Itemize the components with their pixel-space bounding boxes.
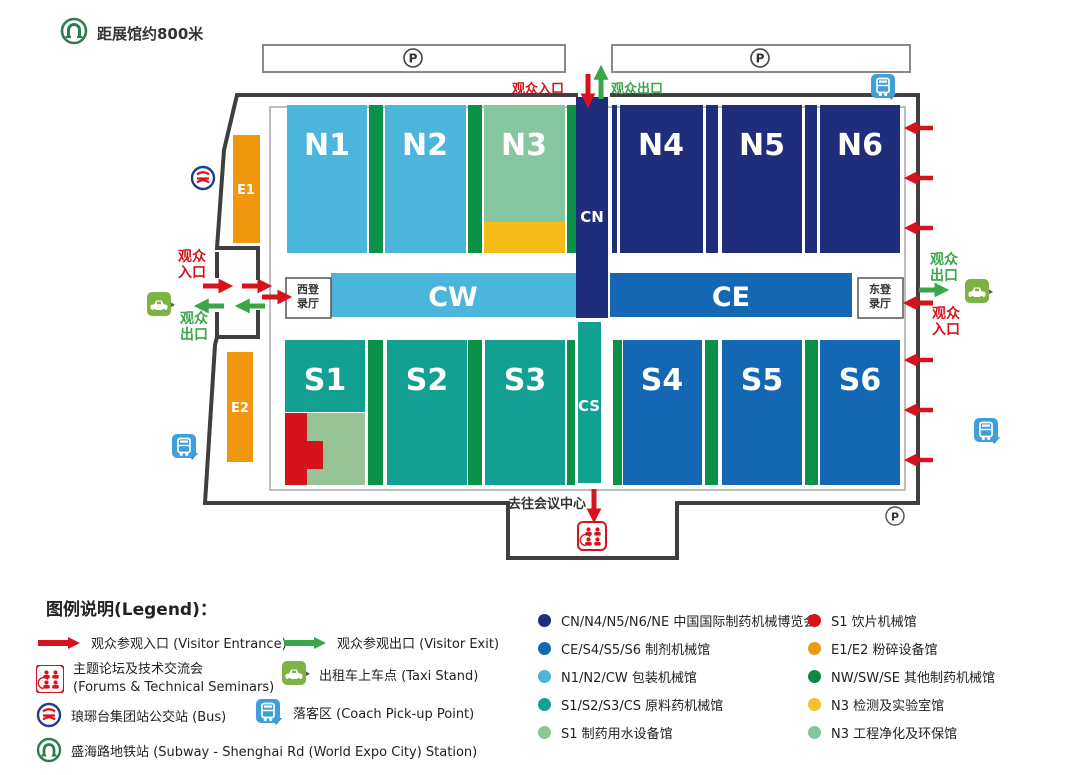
hall-s6-label: S6: [839, 363, 881, 398]
hall-e2-label: E2: [231, 401, 249, 416]
strip-s4-s5: [705, 340, 718, 485]
subway-logo-icon: [36, 737, 62, 763]
parking-lot-east: P: [612, 45, 910, 72]
east-exit-label: 观众出口: [927, 252, 961, 284]
hall-cw-label: CW: [428, 282, 478, 313]
legend-hall-item: CN/N4/N5/N6/NE 中国国际制药机械博览会: [538, 606, 816, 634]
hall-s4: [623, 340, 702, 485]
legend-coach-row: 落客区 (Coach Pick-up Point): [256, 699, 499, 726]
parking-lot-west: P: [263, 45, 565, 72]
color-dot: [808, 642, 821, 655]
parking-label: P: [409, 52, 418, 66]
taxi-stand-icon: [147, 292, 175, 316]
color-dot: [808, 670, 821, 683]
taxi-stand-icon: [282, 661, 310, 687]
hall-s2-label: S2: [406, 363, 448, 398]
entrance-arrow-icon: [36, 636, 82, 650]
west-registration-label: 西登录厅: [295, 283, 321, 311]
legend-hall-item: N3 检测及实验室馆: [808, 690, 995, 718]
legend-coach-label: 落客区 (Coach Pick-up Point): [293, 703, 474, 722]
hall-legend-label: N3 工程净化及环保馆: [831, 723, 957, 742]
strip-n4-n5: [706, 105, 718, 253]
legend-hall-colors-2: S1 饮片机械馆 E1/E2 粉碎设备馆 NW/SW/SE 其他制药机械馆 N3…: [808, 606, 995, 746]
strip-n3-cn: [567, 105, 577, 253]
hall-legend-label: N3 检测及实验室馆: [831, 695, 944, 714]
hall-legend-label: CE/S4/S5/S6 制剂机械馆: [561, 639, 710, 658]
hall-s5-label: S5: [741, 363, 783, 398]
legend-hall-item: S1/S2/S3/CS 原料药机械馆: [538, 690, 816, 718]
strip-s2-s3: [468, 340, 482, 485]
hall-cs-label: CS: [578, 397, 600, 415]
legend-exit-row: 观众参观出口 (Visitor Exit): [282, 633, 499, 652]
legend-taxi-label: 出租车上车点 (Taxi Stand): [319, 665, 478, 684]
top-exit-label: 观众出口: [611, 78, 663, 97]
forums-icon: [36, 665, 64, 693]
parking-label: P: [891, 511, 899, 524]
hall-legend-label: N1/N2/CW 包装机械馆: [561, 667, 697, 686]
parking-label: P: [756, 52, 765, 66]
legend-column-b: 观众参观出口 (Visitor Exit) 出租车上车点 (Taxi Stand…: [282, 633, 499, 735]
legend-hall-item: CE/S4/S5/S6 制剂机械馆: [538, 634, 816, 662]
legend-forums-line1: 主题论坛及技术交流会: [73, 662, 203, 677]
strip-cn-n4: [612, 105, 617, 253]
strip-cs-s4: [613, 340, 622, 485]
hall-s2: [387, 340, 467, 485]
legend-hall-item: S1 制药用水设备馆: [538, 718, 816, 746]
legend-subway-row: 盛海路地铁站 (Subway - Shenghai Rd (World Expo…: [36, 737, 477, 763]
legend-taxi-row: 出租车上车点 (Taxi Stand): [282, 661, 499, 687]
hall-legend-label: S1 饮片机械馆: [831, 611, 917, 630]
west-exit-label: 观众出口: [177, 311, 211, 343]
to-conference-label: 去往会议中心: [508, 493, 586, 512]
hall-s5: [722, 340, 802, 485]
parking-mark-southeast: P: [886, 507, 904, 525]
hall-s1-label: S1: [304, 363, 346, 398]
exit-arrow-icon: [282, 636, 328, 650]
legend-bus-station-label: 琅琊台集团站公交站 (Bus): [71, 706, 226, 725]
legend-entrance-label: 观众参观入口 (Visitor Entrance): [91, 633, 287, 652]
strip-n5-n6: [805, 105, 817, 253]
strip-n1-n2: [369, 105, 383, 253]
hall-s3: [485, 340, 565, 485]
hall-n3-label: N3: [501, 128, 547, 163]
legend-hall-item: E1/E2 粉碎设备馆: [808, 634, 995, 662]
strip-n2-n3: [468, 105, 482, 253]
coach-pickup-icon: [172, 434, 198, 460]
strip-s5-s6: [805, 340, 818, 485]
color-dot: [808, 614, 821, 627]
hall-legend-label: S1 制药用水设备馆: [561, 723, 673, 742]
bus-station-icon: [192, 167, 214, 189]
color-dot: [538, 670, 551, 683]
hall-n4-label: N4: [638, 128, 684, 163]
strip-s3-cs: [567, 340, 575, 485]
forums-icon: [578, 522, 606, 550]
hall-n3-lab-zone: [484, 222, 565, 253]
hall-cn-label: CN: [580, 208, 604, 226]
coach-pickup-icon: [256, 699, 284, 726]
legend-title: 图例说明(Legend)：: [46, 595, 217, 620]
bus-station-icon: [36, 702, 62, 728]
coach-pickup-icon: [974, 418, 1000, 444]
hall-ce-label: CE: [712, 282, 750, 313]
legend-hall-colors-1: CN/N4/N5/N6/NE 中国国际制药机械博览会 CE/S4/S5/S6 制…: [538, 606, 816, 746]
color-dot: [808, 698, 821, 711]
hall-s4-label: S4: [641, 363, 683, 398]
hall-legend-label: S1/S2/S3/CS 原料药机械馆: [561, 695, 723, 714]
legend-hall-item: NW/SW/SE 其他制药机械馆: [808, 662, 995, 690]
legend-hall-item: N1/N2/CW 包装机械馆: [538, 662, 816, 690]
color-dot: [538, 642, 551, 655]
hall-legend-label: CN/N4/N5/N6/NE 中国国际制药机械博览会: [561, 611, 816, 630]
color-dot: [538, 726, 551, 739]
hall-legend-label: NW/SW/SE 其他制药机械馆: [831, 667, 995, 686]
taxi-stand-icon: [965, 279, 993, 303]
hall-n6-label: N6: [837, 128, 883, 163]
legend-exit-label: 观众参观出口 (Visitor Exit): [337, 633, 499, 652]
color-dot: [808, 726, 821, 739]
hall-s3-label: S3: [504, 363, 546, 398]
hall-e1-label: E1: [237, 183, 255, 198]
hall-legend-label: E1/E2 粉碎设备馆: [831, 639, 937, 658]
west-entrance-label: 观众入口: [175, 249, 209, 281]
expo-floorplan: 距展馆约800米: [0, 0, 1080, 775]
legend-forums-line2: (Forums & Technical Seminars): [73, 680, 274, 695]
hall-n5-label: N5: [739, 128, 785, 163]
hall-s6: [820, 340, 900, 485]
hall-n1-label: N1: [304, 128, 350, 163]
color-dot: [538, 698, 551, 711]
hall-n2-label: N2: [402, 128, 448, 163]
legend-hall-item: S1 饮片机械馆: [808, 606, 995, 634]
legend-hall-item: N3 工程净化及环保馆: [808, 718, 995, 746]
east-registration-label: 东登录厅: [867, 283, 893, 311]
legend-subway-label: 盛海路地铁站 (Subway - Shenghai Rd (World Expo…: [71, 741, 477, 760]
east-entrance-label: 观众入口: [929, 306, 963, 338]
coach-pickup-icon: [871, 74, 897, 100]
color-dot: [538, 614, 551, 627]
top-entrance-label: 观众入口: [512, 78, 564, 97]
strip-s1-s2: [368, 340, 383, 485]
